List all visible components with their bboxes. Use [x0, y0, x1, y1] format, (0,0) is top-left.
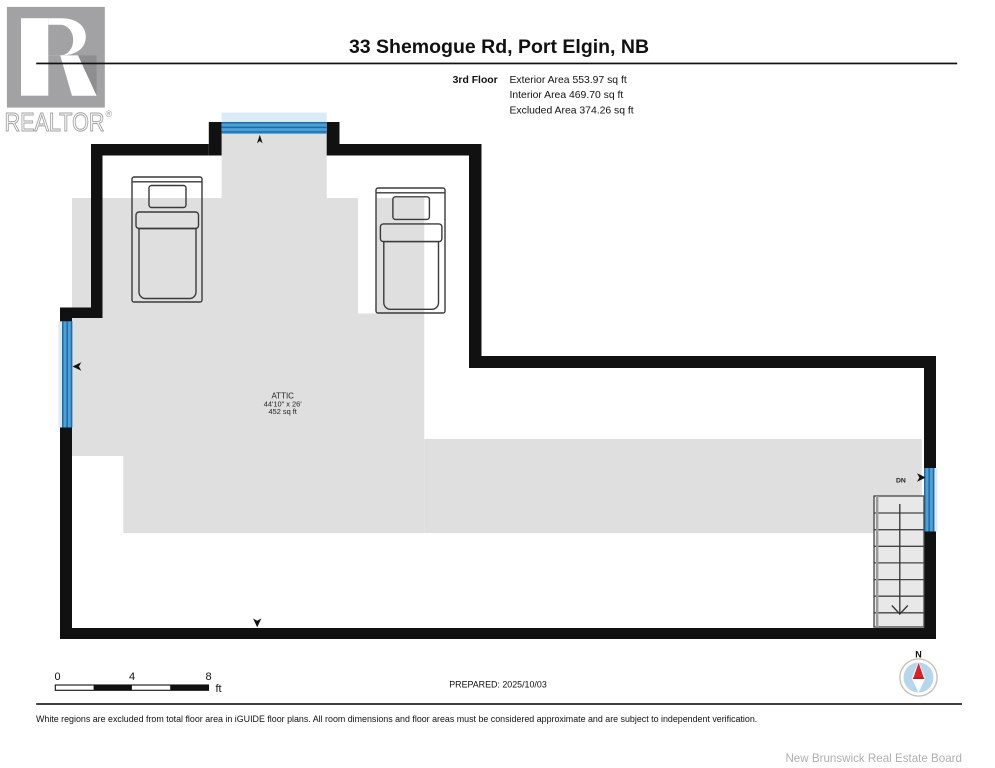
svg-text:PREPARED: 2025/10/03: PREPARED: 2025/10/03	[449, 679, 547, 689]
svg-text:33 Shemogue Rd, Port Elgin, NB: 33 Shemogue Rd, Port Elgin, NB	[349, 36, 649, 58]
svg-text:DN: DN	[896, 477, 906, 484]
svg-text:®: ®	[106, 109, 113, 119]
svg-text:ft: ft	[216, 683, 222, 695]
svg-text:REALTOR: REALTOR	[5, 107, 105, 137]
svg-text:Exterior Area 553.97 sq ft: Exterior Area 553.97 sq ft	[510, 75, 627, 86]
svg-text:N: N	[915, 649, 922, 659]
svg-text:Interior Area 469.70 sq ft: Interior Area 469.70 sq ft	[510, 90, 624, 101]
svg-text:4: 4	[129, 671, 135, 683]
svg-text:Excluded Area 374.26 sq ft: Excluded Area 374.26 sq ft	[510, 105, 634, 116]
svg-text:0: 0	[54, 671, 60, 683]
svg-text:New Brunswick Real Estate Boar: New Brunswick Real Estate Board	[785, 752, 962, 765]
svg-text:White regions are excluded fro: White regions are excluded from total fl…	[36, 714, 757, 724]
svg-text:3rd Floor: 3rd Floor	[453, 75, 498, 86]
svg-text:8: 8	[205, 671, 211, 683]
svg-text:452 sq ft: 452 sq ft	[269, 407, 297, 416]
